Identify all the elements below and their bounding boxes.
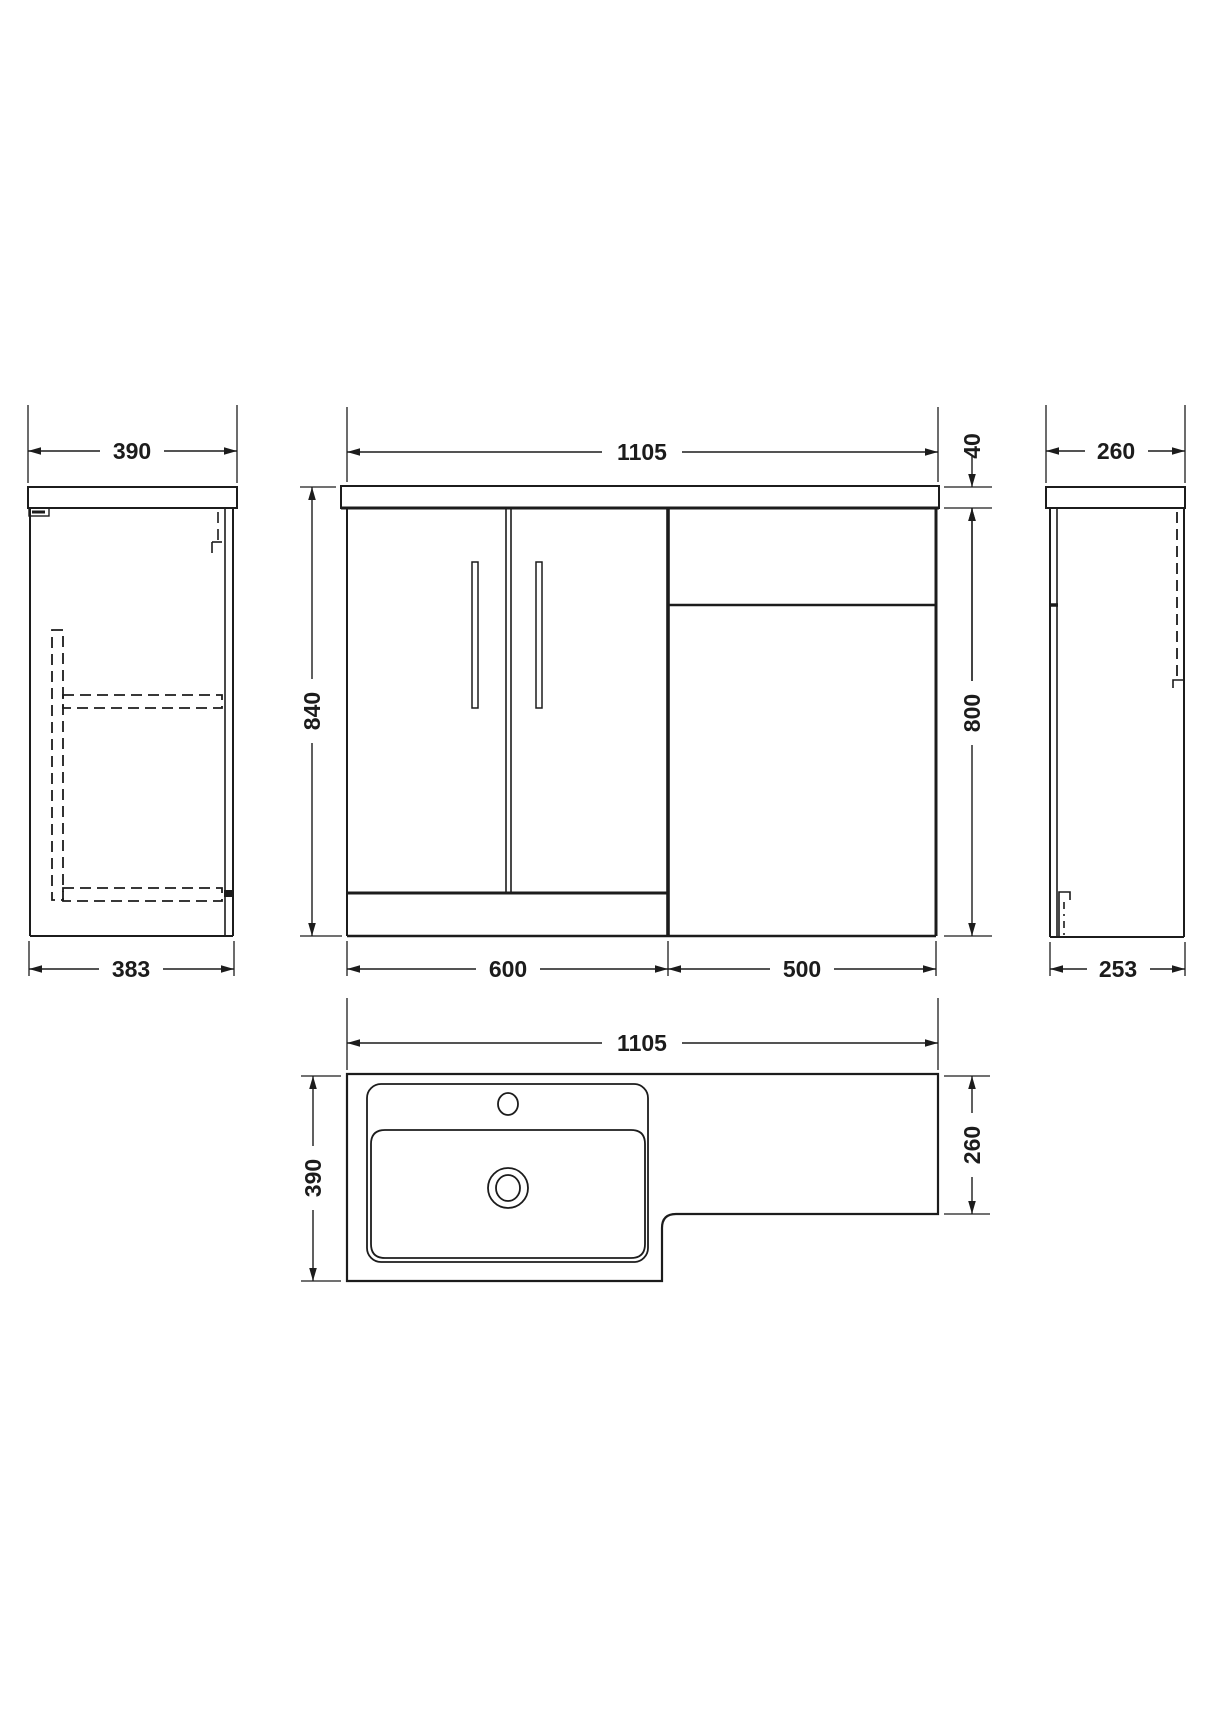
dim-label-1105-plan: 1105 [617,1030,667,1056]
front-view-handle-left [472,562,478,708]
plan-view: 1105 390 260 [300,998,990,1281]
dim-right-depth-bottom: 253 [1050,942,1185,982]
left-view-hidden-panel [52,630,63,900]
left-view-hidden-hinge [212,512,222,557]
dim-label-260-plan: 260 [959,1126,985,1164]
left-view-worktop [28,487,237,508]
left-view-hidden-bottom-panel [63,888,222,901]
drawing-page: 390 383 [0,0,1214,1718]
plan-tap-hole [498,1093,518,1115]
dim-right-depth-top: 260 [1046,405,1185,483]
dim-label-40: 40 [959,433,985,459]
dim-label-500: 500 [783,956,821,982]
left-view-door-bottom-gap [224,890,234,897]
dim-plan-depth: 390 [300,1076,341,1281]
plan-drain-inner [496,1175,520,1201]
plan-basin-bowl [371,1130,645,1258]
technical-drawing: 390 383 [0,0,1214,1718]
dim-front-height-total: 840 [299,487,342,936]
left-view-hidden-shelf [63,695,222,708]
dim-front-vanity-width: 600 [347,941,668,982]
dim-front-height-cabinet: 800 [944,508,992,936]
front-view: 1105 840 40 [299,407,992,982]
dim-label-600: 600 [489,956,527,982]
front-view-handle-right [536,562,542,708]
dim-front-wc-width: 500 [668,941,936,982]
plan-drain-outer [488,1168,528,1208]
dim-label-390-top: 390 [113,438,151,464]
dim-front-worktop-thickness: 40 [944,433,992,540]
dim-label-390-plan: 390 [300,1159,326,1197]
front-view-worktop [341,486,939,508]
dim-label-383: 383 [112,956,150,982]
plan-outline [347,1074,938,1281]
dim-plan-wc-depth: 260 [944,1076,990,1214]
side-view-right: 260 253 [1046,405,1185,982]
right-view-worktop [1046,487,1185,508]
dim-label-1105-front: 1105 [617,439,667,465]
plan-basin-outer [367,1084,648,1262]
dim-left-width-bottom: 383 [29,941,234,982]
dim-label-253: 253 [1099,956,1137,982]
dim-plan-width: 1105 [347,998,938,1070]
dim-label-800: 800 [959,694,985,732]
side-view-left: 390 383 [28,405,237,982]
dim-left-width-top: 390 [28,405,237,483]
dim-label-840: 840 [299,692,325,730]
right-view-hidden-hook [1173,680,1184,688]
dim-front-width: 1105 [347,407,938,482]
dim-label-260-side: 260 [1097,438,1135,464]
